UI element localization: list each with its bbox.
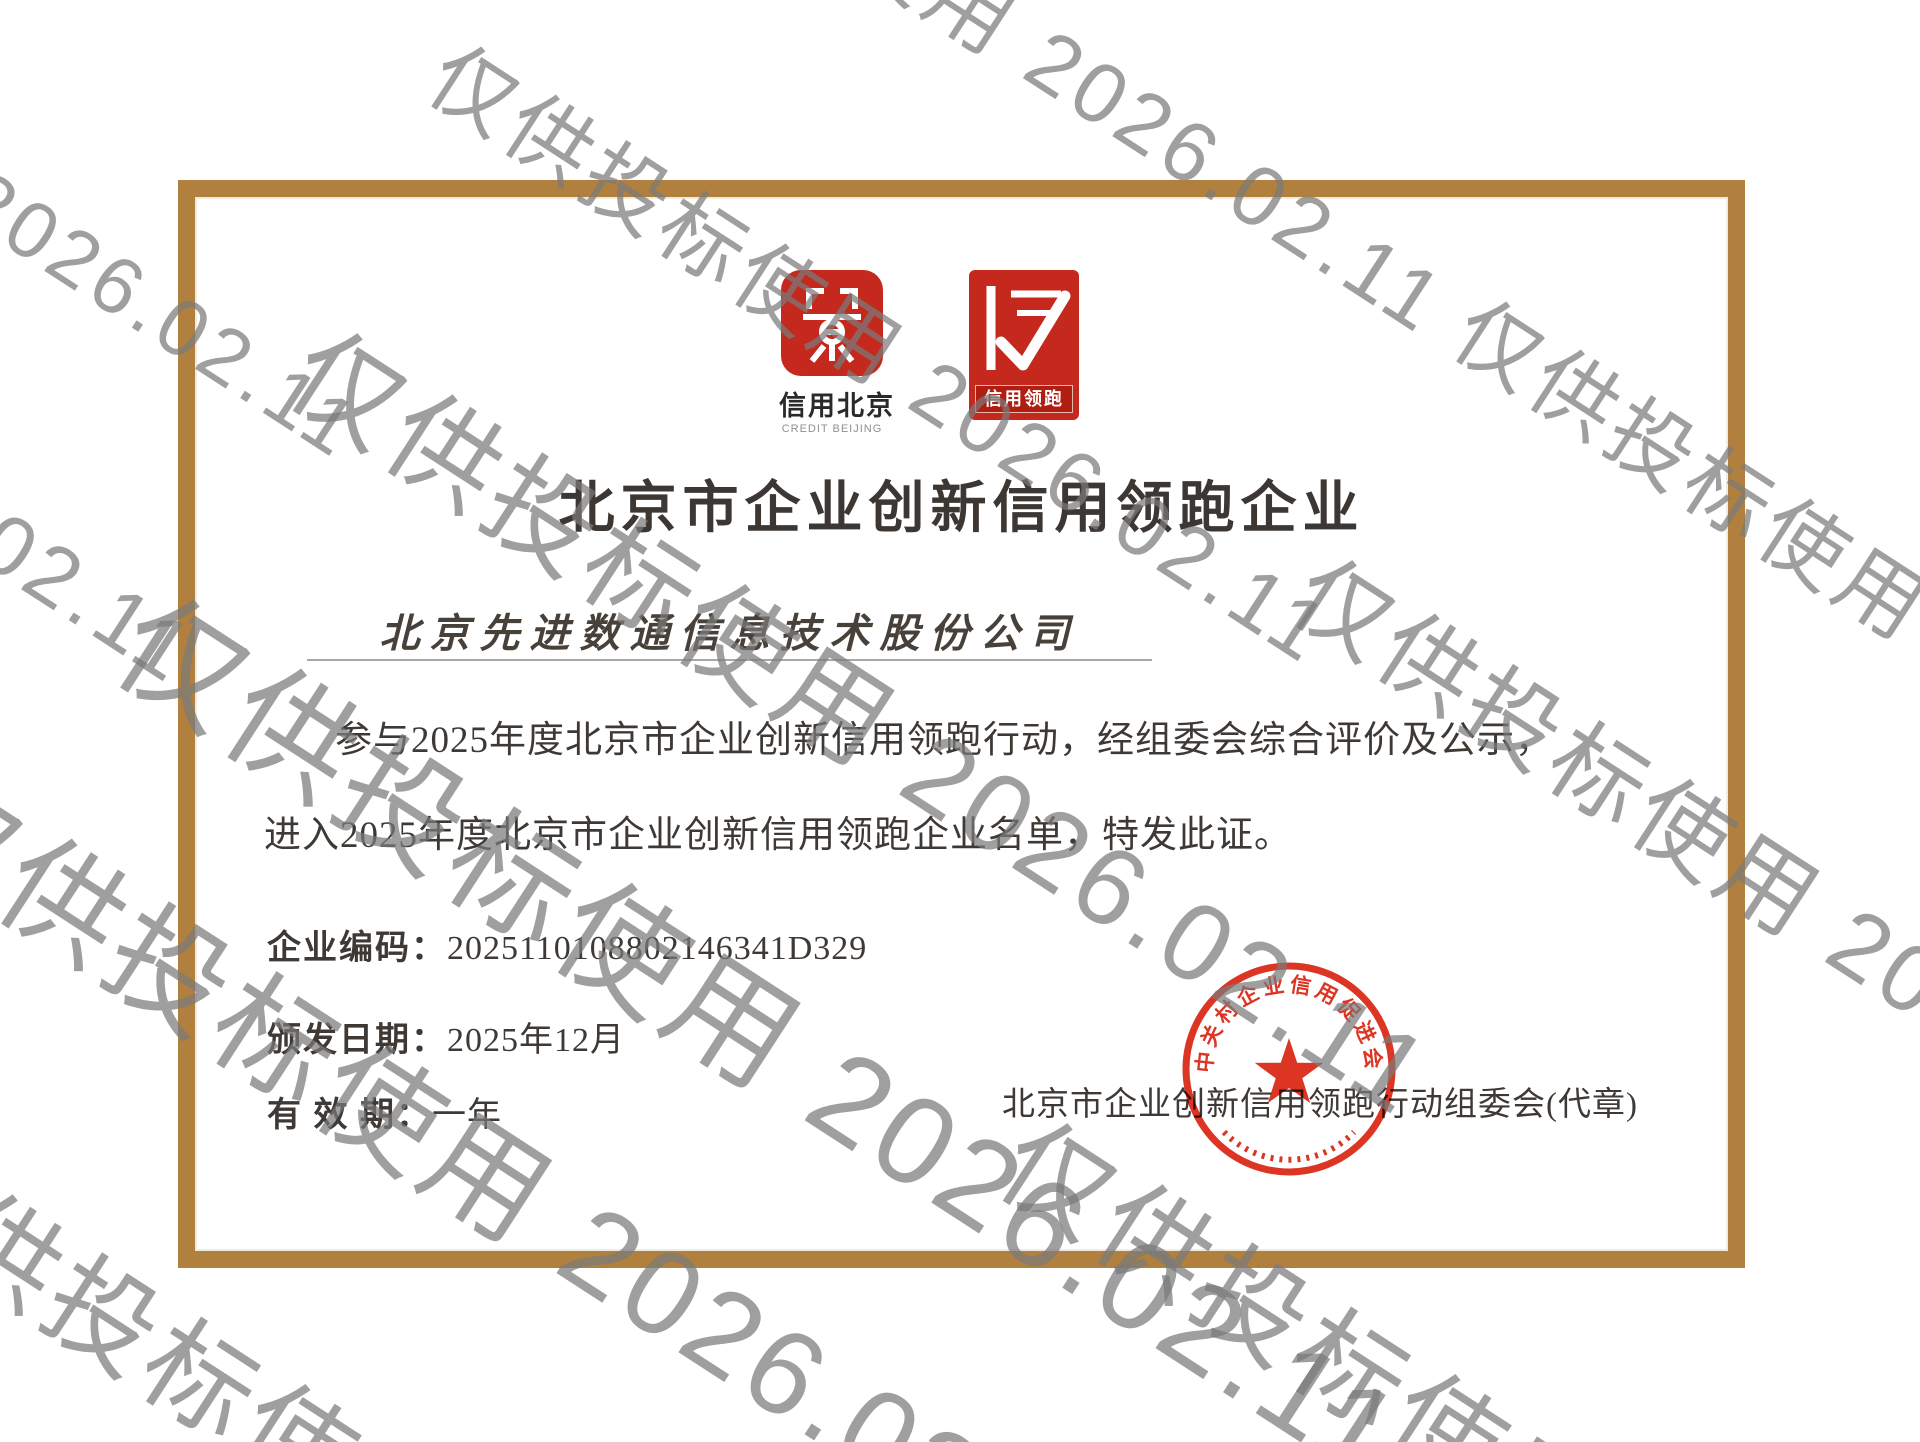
- company-name: 北京先进数通信息技术股份公司: [307, 601, 1152, 661]
- validity-row: 有 效 期：一年: [267, 1087, 502, 1136]
- seal-star-icon: [1255, 1038, 1323, 1103]
- credit-beijing-title: 信用北京: [779, 384, 885, 423]
- red-seal: 中关村企业信用促进会: [1172, 952, 1406, 1186]
- validity-value: 一年: [432, 1097, 502, 1134]
- enterprise-code-row: 企业编码：2025110108802146341D329: [267, 920, 867, 969]
- issue-date-row: 颁发日期：2025年12月: [267, 1012, 625, 1061]
- credit-beijing-logo: 信用北京 CREDIT BEIJING: [779, 270, 885, 435]
- body-line-2: 进入2025年度北京市企业创新信用领跑企业名单，特发此证。: [264, 804, 1292, 858]
- issue-date-label: 颁发日期：: [267, 1022, 447, 1059]
- credit-beijing-mark-icon: [781, 270, 883, 376]
- leadrun-glyph-icon: [969, 270, 1079, 382]
- beijing-glyph-icon: [797, 283, 867, 363]
- certificate-frame: 信用北京 CREDIT BEIJING 信用领跑 北京市企业创新信用领跑企业 北…: [178, 180, 1745, 1268]
- certificate-page: 信用北京 CREDIT BEIJING 信用领跑 北京市企业创新信用领跑企业 北…: [0, 0, 1920, 1442]
- credit-beijing-subtitle: CREDIT BEIJING: [779, 423, 885, 435]
- enterprise-code-value: 2025110108802146341D329: [447, 930, 867, 967]
- leadrun-banner: 信用领跑: [975, 385, 1073, 413]
- issue-date-value: 2025年12月: [447, 1022, 625, 1059]
- seal-serial-marks: [1224, 1132, 1354, 1160]
- credit-leadrun-logo: 信用领跑: [969, 270, 1079, 420]
- validity-label: 有 效 期：: [267, 1097, 432, 1134]
- body-line-1: 参与2025年度北京市企业创新信用领跑行动，经组委会综合评价及公示，: [335, 709, 1553, 763]
- certificate-title: 北京市企业创新信用领跑企业: [195, 463, 1728, 544]
- enterprise-code-label: 企业编码：: [267, 930, 447, 967]
- logo-group: 信用北京 CREDIT BEIJING 信用领跑: [779, 270, 1079, 435]
